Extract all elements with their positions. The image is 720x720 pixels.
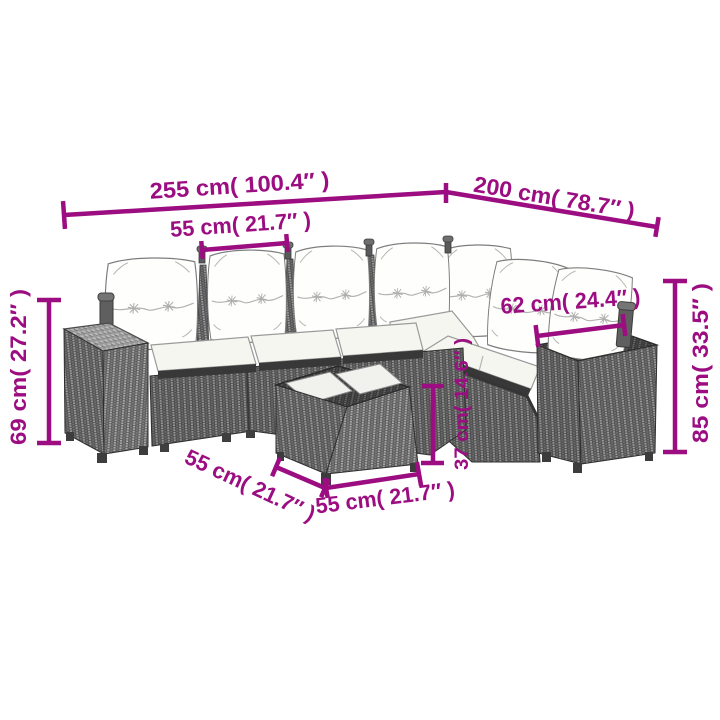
svg-text:37 cm( 14.6″ ): 37 cm( 14.6″ ) — [451, 338, 473, 470]
svg-text:69 cm( 27.2″ ): 69 cm( 27.2″ ) — [6, 289, 31, 445]
svg-text:85 cm( 33.5″ ): 85 cm( 33.5″ ) — [688, 283, 713, 443]
